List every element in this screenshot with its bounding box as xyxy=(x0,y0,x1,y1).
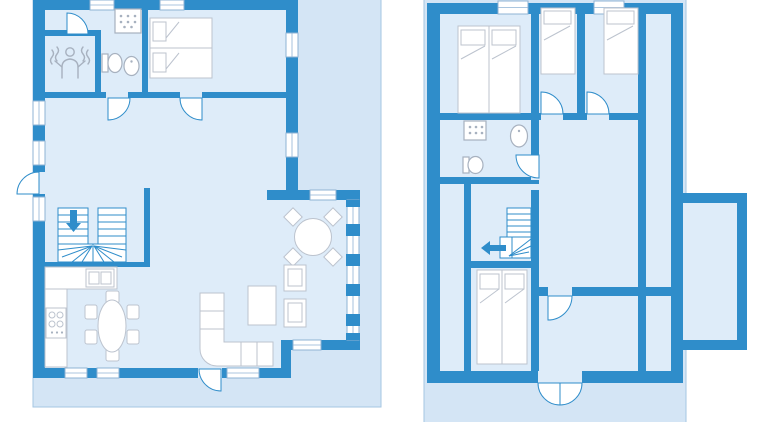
terrace-door-opening xyxy=(538,371,582,383)
shower-icon xyxy=(464,121,486,140)
bay-window-band xyxy=(346,200,360,340)
window-icon xyxy=(33,101,45,125)
window-icon xyxy=(286,133,298,157)
armchair-icon xyxy=(284,299,306,327)
single-bed-icon xyxy=(541,8,575,74)
window-icon xyxy=(90,0,114,10)
window-icon xyxy=(97,368,119,378)
chair-icon xyxy=(127,330,139,344)
floor-plans-canvas xyxy=(0,0,768,422)
window-icon xyxy=(65,368,87,378)
chair-icon xyxy=(127,305,139,319)
window-icon xyxy=(310,190,336,200)
window-icon xyxy=(33,197,45,221)
window-icon xyxy=(227,368,259,378)
twin-beds-icon xyxy=(477,270,527,364)
sink-icon xyxy=(511,125,528,147)
double-bed-icon xyxy=(150,18,212,78)
ground-floor-plan xyxy=(17,0,381,407)
shower-icon xyxy=(115,9,141,33)
sink-icon xyxy=(124,57,139,76)
kitchen-sink-icon xyxy=(86,269,114,287)
window-icon xyxy=(293,340,321,350)
window-icon xyxy=(160,0,184,10)
window-icon xyxy=(286,33,298,57)
floor-plan-image xyxy=(0,0,768,422)
chair-icon xyxy=(85,305,97,319)
stove-icon xyxy=(46,308,66,338)
toilet-icon xyxy=(102,54,122,73)
coffee-table-icon xyxy=(248,286,276,325)
door-arc-icon xyxy=(17,172,39,194)
single-bed-icon xyxy=(604,8,638,74)
chair-icon xyxy=(85,330,97,344)
armchair-icon xyxy=(284,265,306,291)
toilet-icon xyxy=(463,157,483,174)
upper-floor-plan xyxy=(424,0,747,422)
double-bed-icon xyxy=(458,26,520,113)
window-icon xyxy=(498,1,528,14)
window-icon xyxy=(33,141,45,165)
